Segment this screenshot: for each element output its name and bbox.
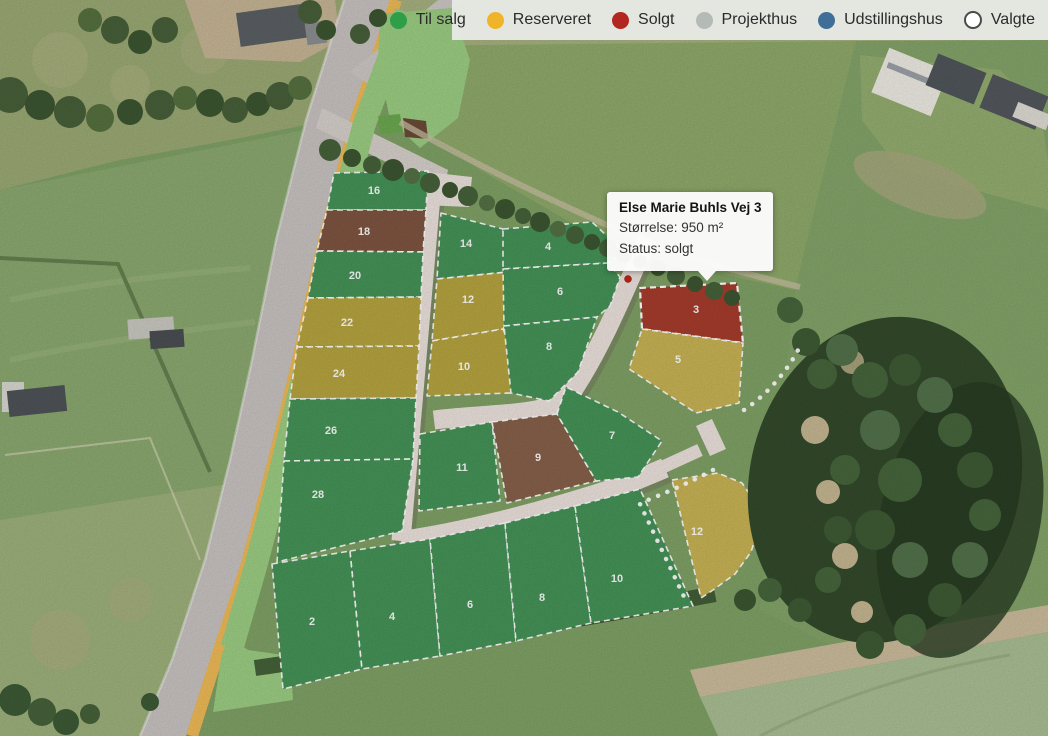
status-legend: Til salg Reserveret Solgt Projekthus Uds… xyxy=(452,0,1048,40)
aerial-map: 16 18 20 22 24 26 28 14 12 10 xyxy=(0,0,1048,736)
legend-label: Reserveret xyxy=(513,11,591,29)
valgte-circle-icon xyxy=(964,11,982,29)
photo-grain xyxy=(0,0,1048,736)
til-salg-dot-icon xyxy=(390,12,407,29)
udstillingshus-dot-icon xyxy=(818,12,835,29)
legend-item-til-salg: Til salg xyxy=(390,11,466,29)
tooltip-size: Størrelse: 950 m² xyxy=(619,219,761,238)
legend-label: Udstillingshus xyxy=(844,11,943,29)
legend-item-udstillingshus: Udstillingshus xyxy=(818,11,943,29)
reserveret-dot-icon xyxy=(487,12,504,29)
legend-item-projekthus: Projekthus xyxy=(696,11,798,29)
legend-item-solgt: Solgt xyxy=(612,11,674,29)
plot-tooltip: Else Marie Buhls Vej 3 Størrelse: 950 m²… xyxy=(607,192,773,271)
solgt-dot-icon xyxy=(612,12,629,29)
legend-label: Valgte xyxy=(991,11,1035,29)
legend-label: Solgt xyxy=(638,11,674,29)
legend-item-valgte: Valgte xyxy=(964,11,1035,29)
tooltip-title: Else Marie Buhls Vej 3 xyxy=(619,200,761,215)
legend-label: Projekthus xyxy=(722,11,798,29)
projekthus-dot-icon xyxy=(696,12,713,29)
plot-sales-map: 16 18 20 22 24 26 28 14 12 10 xyxy=(0,0,1048,736)
legend-label: Til salg xyxy=(416,11,466,29)
legend-item-reserveret: Reserveret xyxy=(487,11,591,29)
tooltip-status: Status: solgt xyxy=(619,240,761,259)
